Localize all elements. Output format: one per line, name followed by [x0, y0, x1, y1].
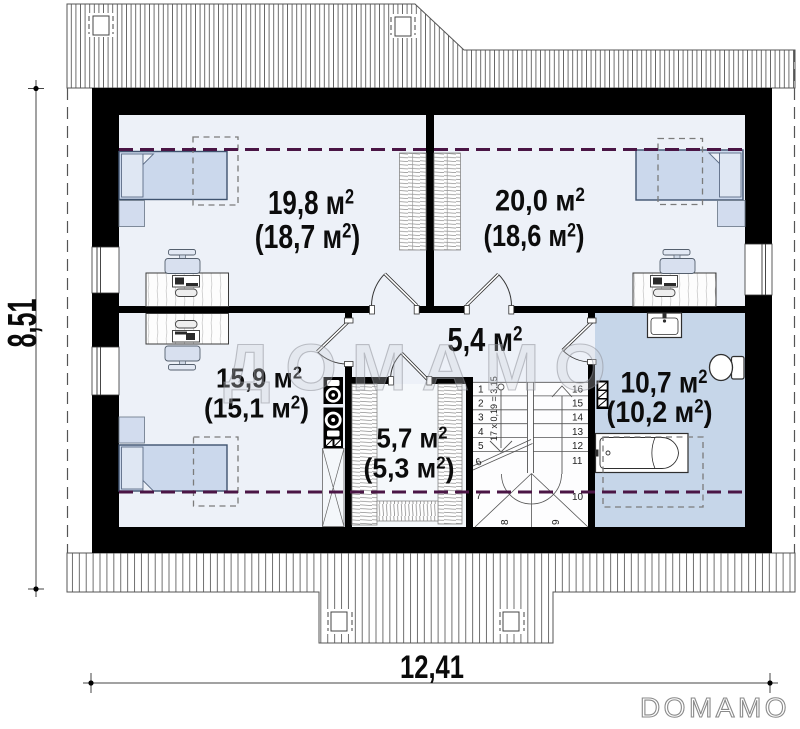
- svg-text:19,8 м2: 19,8 м2: [268, 185, 354, 222]
- svg-text:8,51: 8,51: [0, 299, 45, 348]
- svg-text:12: 12: [572, 441, 584, 452]
- svg-text:ДОМАМО: ДОМАМО: [223, 330, 620, 404]
- svg-text:13: 13: [572, 427, 584, 438]
- svg-text:10,7 м2: 10,7 м2: [621, 367, 708, 400]
- svg-text:5: 5: [478, 441, 484, 452]
- svg-text:20,0 м2: 20,0 м2: [495, 185, 585, 218]
- svg-text:11: 11: [572, 456, 583, 467]
- svg-text:DOMAMO: DOMAMO: [640, 692, 790, 723]
- svg-text:10: 10: [572, 492, 584, 503]
- svg-text:5,7 м2: 5,7 м2: [377, 423, 448, 454]
- svg-text:14: 14: [572, 413, 584, 424]
- svg-text:8: 8: [500, 519, 511, 525]
- svg-text:3: 3: [478, 413, 484, 424]
- svg-text:12,41: 12,41: [400, 649, 464, 685]
- svg-text:4: 4: [478, 427, 484, 438]
- svg-text:9: 9: [551, 519, 562, 525]
